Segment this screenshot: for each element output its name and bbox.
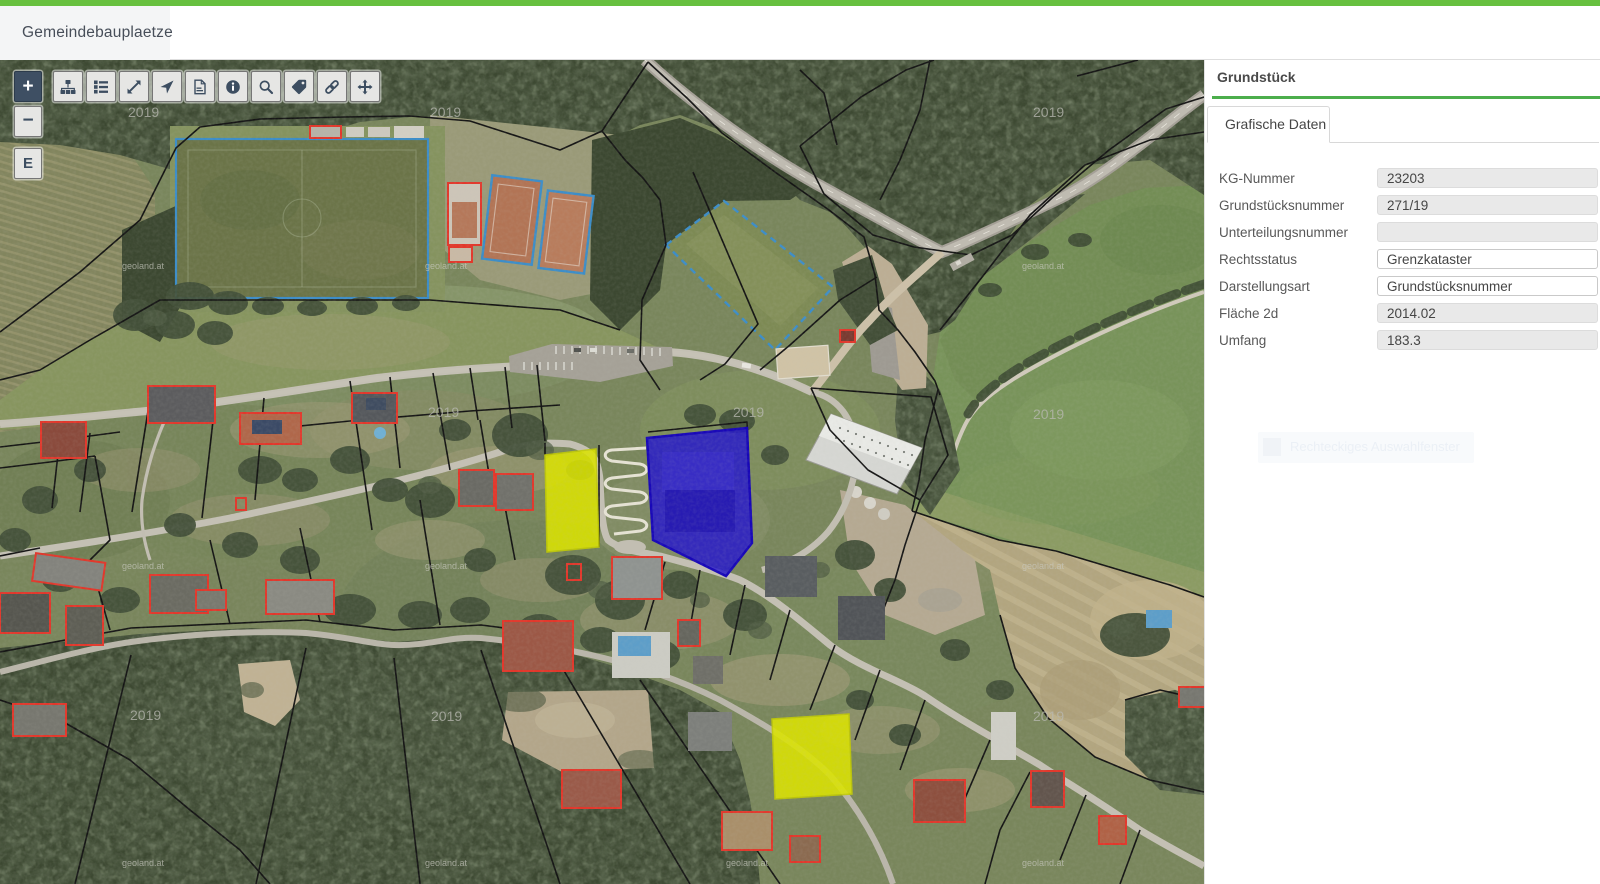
svg-text:2019: 2019 bbox=[431, 708, 462, 724]
svg-text:2019: 2019 bbox=[1033, 104, 1064, 120]
svg-text:2019: 2019 bbox=[430, 104, 461, 120]
svg-text:2019: 2019 bbox=[1033, 708, 1064, 724]
svg-text:geoland.at: geoland.at bbox=[425, 261, 468, 271]
svg-text:geoland.at: geoland.at bbox=[1022, 858, 1065, 868]
svg-text:geoland.at: geoland.at bbox=[122, 561, 165, 571]
svg-text:geoland.at: geoland.at bbox=[425, 858, 468, 868]
svg-text:geoland.at: geoland.at bbox=[122, 858, 165, 868]
svg-text:geoland.at: geoland.at bbox=[1022, 261, 1065, 271]
svg-text:geoland.at: geoland.at bbox=[726, 858, 769, 868]
svg-text:geoland.at: geoland.at bbox=[425, 561, 468, 571]
svg-text:geoland.at: geoland.at bbox=[1022, 561, 1065, 571]
svg-text:2019: 2019 bbox=[428, 404, 459, 420]
svg-text:2019: 2019 bbox=[128, 104, 159, 120]
svg-text:2019: 2019 bbox=[130, 707, 161, 723]
svg-text:geoland.at: geoland.at bbox=[122, 261, 165, 271]
svg-text:2019: 2019 bbox=[1033, 406, 1064, 422]
svg-text:2019: 2019 bbox=[733, 404, 764, 420]
